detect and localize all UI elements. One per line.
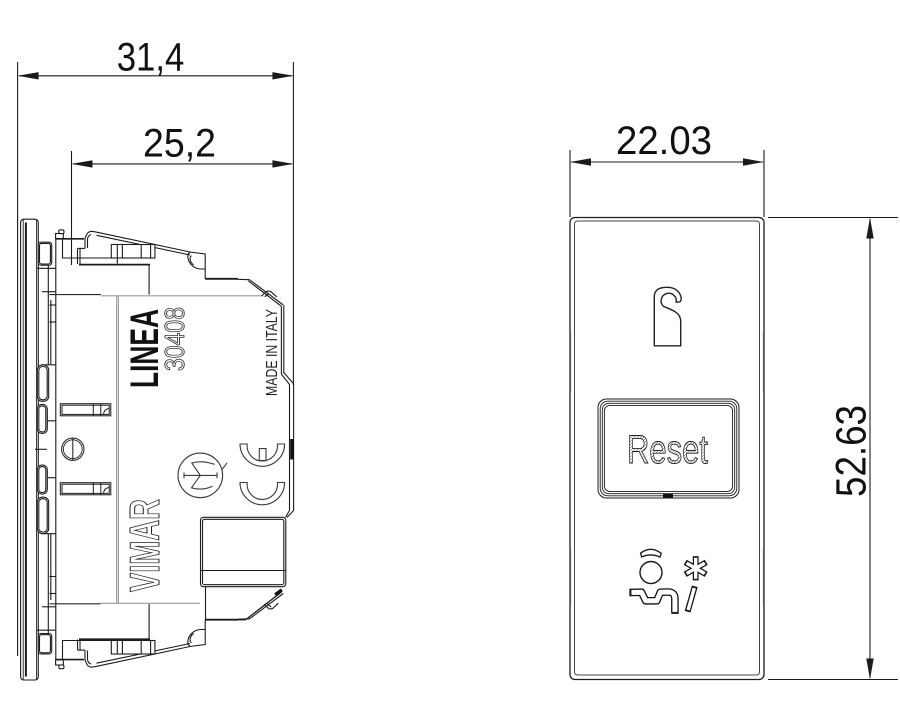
svg-text:Reset: Reset xyxy=(627,428,708,472)
svg-text:31,4: 31,4 xyxy=(117,35,185,79)
svg-text:52.63: 52.63 xyxy=(829,405,876,497)
svg-text:25,2: 25,2 xyxy=(143,122,216,166)
svg-text:VIMAR: VIMAR xyxy=(121,499,168,592)
svg-text:22.03: 22.03 xyxy=(616,119,712,163)
svg-text:30408: 30408 xyxy=(159,307,190,371)
svg-text:MADE IN ITALY: MADE IN ITALY xyxy=(264,309,281,396)
